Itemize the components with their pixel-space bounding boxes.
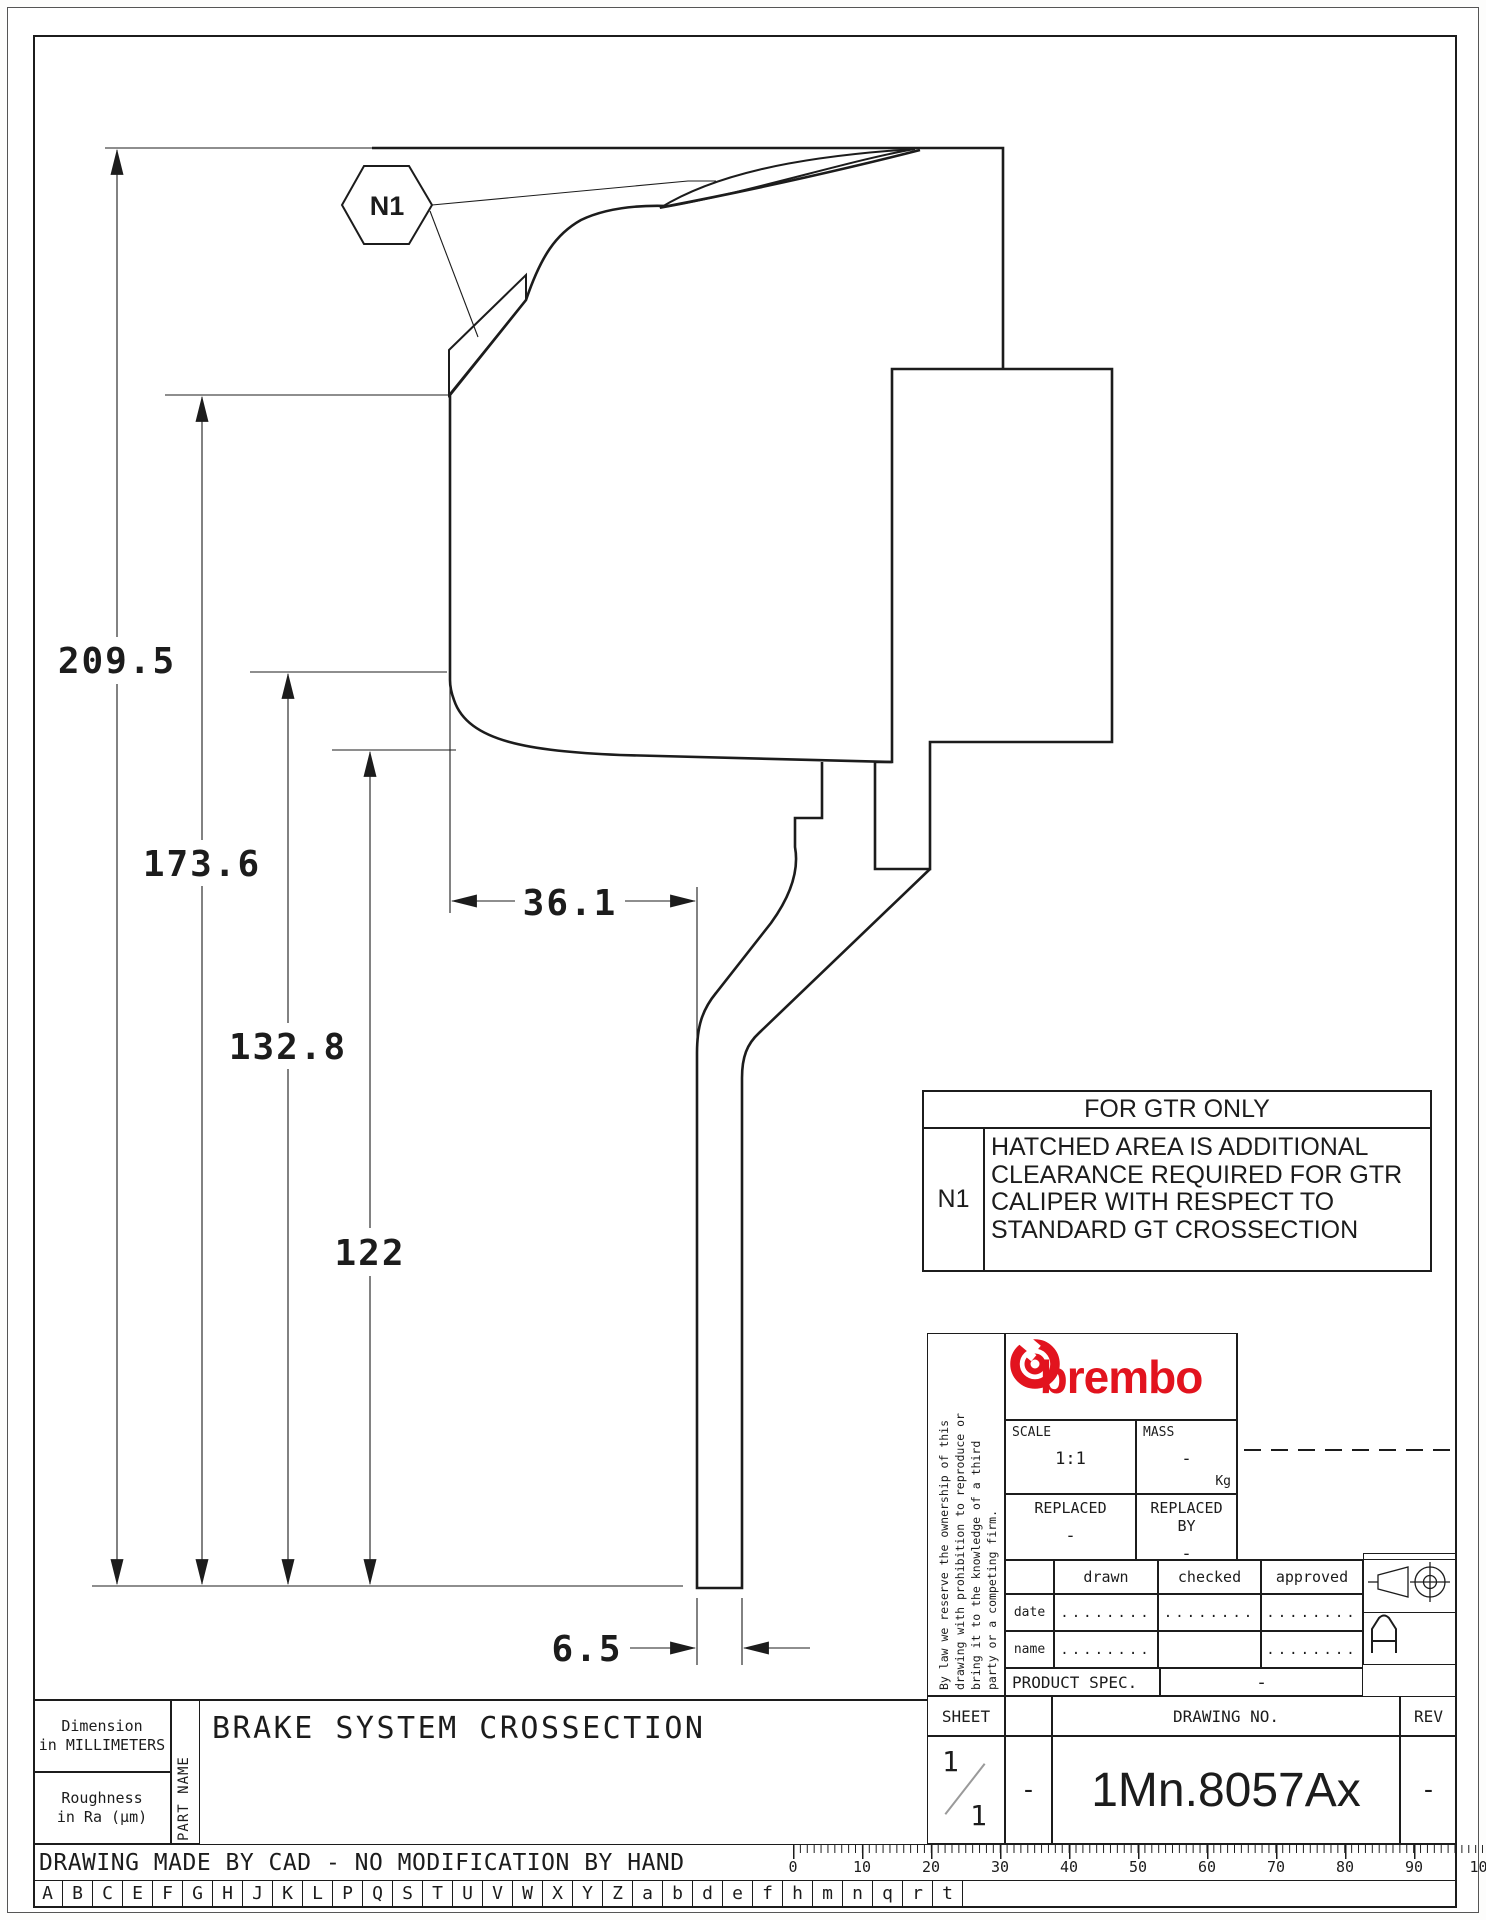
gtr-note-header: FOR GTR ONLY [924, 1092, 1430, 1129]
dim-value-6-5: 6.5 [551, 1629, 622, 1670]
gtr-note-box: FOR GTR ONLY N1 HATCHED AREA IS ADDITION… [922, 1090, 1432, 1272]
brand-cell: brembo [1005, 1333, 1237, 1420]
revision-letter-cell: W [513, 1881, 543, 1906]
scale-value: 1:1 [1012, 1449, 1129, 1469]
n1-leader-lower [430, 211, 478, 337]
replaced-by-label: REPLACED BY [1150, 1499, 1222, 1535]
part-name-column: PART NAME [171, 1700, 200, 1844]
drawn-header: drawn [1054, 1560, 1158, 1594]
dim-value-173-6: 173.6 [143, 844, 261, 885]
ruler-label: 80 [1323, 1858, 1367, 1876]
brembo-logo-icon [1006, 1334, 1064, 1392]
legal-line: party or a competing firm. [984, 1334, 1000, 1690]
caliper-envelope-profile [450, 150, 920, 762]
roughness-units-line1: Roughness [61, 1789, 142, 1808]
cad-note-row: DRAWING MADE BY CAD - NO MODIFICATION BY… [33, 1844, 1457, 1880]
revision-letter-cell: S [393, 1881, 423, 1906]
ruler-label: 60 [1185, 1858, 1229, 1876]
date-approved-value: ........ [1261, 1594, 1363, 1631]
roughness-units-line2: in Ra (µm) [57, 1808, 147, 1827]
revision-letter-cell: Q [363, 1881, 393, 1906]
date-drawn-value: ........ [1054, 1594, 1158, 1631]
ruler-label: 0 [771, 1858, 815, 1876]
brembo-logo-text: brembo [1040, 1350, 1203, 1404]
checked-header: checked [1158, 1560, 1261, 1594]
revision-letter-cell: a [633, 1881, 663, 1906]
gtr-note-ref: N1 [924, 1129, 985, 1270]
replaced-label: REPLACED [1034, 1499, 1106, 1517]
gtr-note-line: CALIPER WITH RESPECT TO [991, 1189, 1430, 1217]
disc-leg-profile [697, 762, 930, 1588]
revision-letter-cell: Z [603, 1881, 633, 1906]
mass-unit: Kg [1215, 1474, 1231, 1489]
drawing-number: 1Mn.8057Ax [1052, 1736, 1400, 1844]
sheet-spacer [1005, 1696, 1052, 1736]
part-title: BRAKE SYSTEM CROSSECTION [212, 1711, 927, 1746]
product-spec-label: PRODUCT SPEC. [1005, 1668, 1160, 1696]
rev-value-cell: - [1400, 1736, 1457, 1844]
scale-ruler-ticks [793, 1845, 1483, 1859]
revision-letter-cell: m [813, 1881, 843, 1906]
revision-letter-cell: Y [573, 1881, 603, 1906]
name-row-label: name [1005, 1631, 1054, 1668]
revision-letter-cell: V [483, 1881, 513, 1906]
revision-letter-cell: f [753, 1881, 783, 1906]
ruler-label: 20 [909, 1858, 953, 1876]
revision-letter-cell: J [243, 1881, 273, 1906]
revision-letter-cell: X [543, 1881, 573, 1906]
revision-letter-cell: q [873, 1881, 903, 1906]
revision-letter-cell: t [933, 1881, 963, 1906]
revision-letter-cell: G [183, 1881, 213, 1906]
sheet-numerator: 1 [942, 1745, 959, 1778]
approved-header: approved [1261, 1560, 1363, 1594]
gtr-note-line: CLEARANCE REQUIRED FOR GTR [991, 1162, 1430, 1190]
sheet-dash-cell: - [1005, 1736, 1052, 1844]
revision-letter-cell: F [153, 1881, 183, 1906]
gtr-note-line: STANDARD GT CROSSECTION [991, 1217, 1430, 1245]
dim-value-209-5: 209.5 [58, 641, 176, 682]
revision-letter-cell: n [843, 1881, 873, 1906]
cad-note: DRAWING MADE BY CAD - NO MODIFICATION BY… [39, 1850, 685, 1876]
roughness-units-box: Roughness in Ra (µm) [33, 1772, 171, 1844]
revision-letter-cell: A [33, 1881, 63, 1906]
revision-letter-cell: C [93, 1881, 123, 1906]
revision-letter-strip: ABCEFGHJKLPQSTUVWXYZabdefhmnqrt [33, 1880, 1457, 1908]
size-symbol-cell: A [1363, 1613, 1457, 1665]
revision-letter-cell: e [723, 1881, 753, 1906]
scale-label: SCALE [1012, 1425, 1051, 1440]
revision-letter-cell: P [333, 1881, 363, 1906]
part-name-label: PART NAME [176, 1701, 192, 1841]
ruler-label: 70 [1254, 1858, 1298, 1876]
replaced-value: - [1012, 1526, 1129, 1546]
n1-balloon-label: N1 [370, 191, 405, 221]
revision-letter-cell: U [453, 1881, 483, 1906]
dimension-units-line2: in MILLIMETERS [39, 1736, 165, 1755]
sheet-denominator: 1 [970, 1799, 987, 1832]
first-angle-projection-icon [1364, 1554, 1455, 1611]
scale-ruler-labels: 0102030405060708090100 [771, 1858, 1486, 1876]
revision-letter-cell: r [903, 1881, 933, 1906]
ruler-label: 100 [1461, 1858, 1486, 1876]
dim-value-36-1: 36.1 [523, 883, 618, 924]
legal-notice-text: By law we reserve the ownership of thisd… [936, 1334, 1000, 1690]
revision-letter-cell: d [693, 1881, 723, 1906]
revision-letter-cell: B [63, 1881, 93, 1906]
scale-cell: SCALE 1:1 [1005, 1420, 1136, 1494]
drawing-no-label: DRAWING NO. [1052, 1696, 1400, 1736]
product-spec-value: - [1160, 1668, 1363, 1696]
dimension-units-line1: Dimension [61, 1717, 142, 1736]
sheet-label: SHEET [927, 1696, 1005, 1736]
dim-value-132-8: 132.8 [229, 1027, 347, 1068]
revision-letter-cell: K [273, 1881, 303, 1906]
mass-cell: MASS - Kg [1136, 1420, 1237, 1494]
gtr-note-text: HATCHED AREA IS ADDITIONALCLEARANCE REQU… [985, 1129, 1430, 1270]
frame-continuation-cell [1237, 1333, 1457, 1560]
sheet-value-cell: 1 1 [927, 1736, 1005, 1844]
replaced-by-cell: REPLACED BY - [1136, 1494, 1237, 1560]
legal-line: bring it to the knowledge of a third [968, 1334, 984, 1690]
ruler-label: 10 [840, 1858, 884, 1876]
dim-value-122: 122 [334, 1233, 405, 1274]
revision-letter-cell: E [123, 1881, 153, 1906]
name-approved-value: ........ [1261, 1631, 1363, 1668]
date-checked-value: ........ [1158, 1594, 1261, 1631]
mass-label: MASS [1143, 1425, 1174, 1440]
projection-symbol-cell [1363, 1553, 1457, 1613]
gtr-note-line: HATCHED AREA IS ADDITIONAL [991, 1134, 1430, 1162]
legal-line: By law we reserve the ownership of this [936, 1334, 952, 1690]
phantom-centerline [1244, 1449, 1454, 1451]
rev-label: REV [1400, 1696, 1457, 1736]
revision-letter-cell: h [783, 1881, 813, 1906]
replaced-cell: REPLACED - [1005, 1494, 1136, 1560]
revision-letter-cell: L [303, 1881, 333, 1906]
revision-letter-cell: T [423, 1881, 453, 1906]
ruler-label: 40 [1047, 1858, 1091, 1876]
size-symbol-icon [1364, 1613, 1404, 1655]
cad-drawing-sheet: N1 209.5 173.6 132.8 122 36.1 6.5 [0, 0, 1486, 1920]
revision-letter-cell: b [663, 1881, 693, 1906]
part-title-cell: BRAKE SYSTEM CROSSECTION [200, 1700, 927, 1844]
upright-block-profile [875, 369, 1112, 869]
ruler-label: 50 [1116, 1858, 1160, 1876]
dimension-units-box: Dimension in MILLIMETERS [33, 1700, 171, 1772]
legal-notice-column: By law we reserve the ownership of thisd… [927, 1333, 1005, 1696]
sig-corner-cell [1005, 1560, 1054, 1594]
name-checked-value [1158, 1631, 1261, 1668]
hatched-clearance-lower [449, 275, 526, 395]
ruler-label: 90 [1392, 1858, 1436, 1876]
mass-value: - [1143, 1449, 1230, 1469]
revision-letter-cell: H [213, 1881, 243, 1906]
date-row-label: date [1005, 1594, 1054, 1631]
ruler-label: 30 [978, 1858, 1022, 1876]
name-drawn-value: ........ [1054, 1631, 1158, 1668]
legal-line: drawing with prohibition to reproduce or [952, 1334, 968, 1690]
